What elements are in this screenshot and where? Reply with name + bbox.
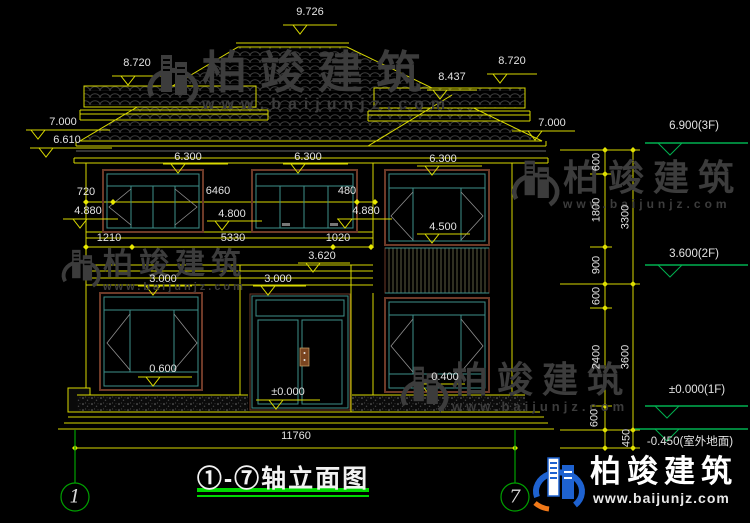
dim-1020: 1020	[326, 233, 350, 244]
dim-right-hip: 8.437	[438, 72, 466, 83]
axis-number-right: 7	[509, 487, 520, 508]
plinth-left	[77, 395, 248, 412]
window-2f-left	[103, 170, 203, 232]
dim-soffit-left: 6.300	[174, 152, 202, 163]
watermark-logo-icon	[56, 246, 102, 292]
dim-soffit-mid: 6.300	[294, 152, 322, 163]
watermark-website: www.baijunjz.com	[202, 97, 452, 113]
chain-1800: 1800	[592, 198, 603, 222]
dim-3620: 3.620	[308, 251, 336, 262]
dim-4800: 4.800	[218, 209, 246, 220]
dim-4880-left: 4.880	[74, 206, 102, 217]
footer-company-name: 柏竣建筑	[590, 456, 738, 487]
watermark-logo-icon	[394, 360, 450, 420]
level-ground: -0.450(室外地面)	[647, 437, 733, 449]
dim-4880-right: 4.880	[352, 206, 380, 217]
dim-0400: 0.400	[431, 372, 459, 383]
chain-2400: 2400	[592, 345, 603, 369]
dim-eave-right: 7.000	[538, 118, 566, 129]
dim-ridge: 9.726	[296, 7, 324, 18]
dim-soffit-right: 6.300	[429, 154, 457, 165]
dim-right-wing: 8.720	[498, 56, 526, 67]
company-logo-icon	[527, 453, 587, 513]
level-1f: ±0.000(1F)	[669, 385, 725, 397]
dim-4500: 4.500	[429, 222, 457, 233]
chain-450: 450	[622, 429, 633, 447]
watermark-top: 柏竣建筑 www.baijunjz.com	[202, 50, 452, 113]
dim-total-width: 11760	[281, 431, 311, 442]
footer-website: www.baijunjz.com	[593, 491, 730, 505]
steps	[58, 412, 554, 429]
watermark-logo-icon	[505, 156, 561, 212]
drawing-title: ①-⑦轴立面图	[197, 459, 369, 495]
window-1f-left	[100, 293, 202, 390]
chain-600-c: 600	[590, 409, 601, 427]
dim-left-wing: 8.720	[123, 58, 151, 69]
watermark-bottom: 柏竣建筑 www.baijunjz.com	[452, 362, 632, 413]
dim-eave-left-bottom: 6.610	[53, 135, 81, 146]
chain-600-b: 600	[592, 287, 603, 305]
dim-1210: 1210	[97, 233, 121, 244]
dim-720: 720	[77, 187, 95, 198]
chain-900: 900	[592, 256, 603, 274]
dim-3000-left: 3.000	[149, 274, 177, 285]
chain-600-a: 600	[592, 153, 603, 171]
watermark-company: 柏竣建筑	[452, 362, 632, 398]
dim-0000: ±0.000	[271, 387, 305, 398]
chain-3300: 3300	[621, 205, 632, 229]
level-3f: 6.900(3F)	[669, 121, 719, 133]
dim-0600: 0.600	[149, 364, 177, 375]
dim-6460: 6460	[206, 186, 230, 197]
chain-3600: 3600	[621, 345, 632, 369]
balcony-louver	[385, 248, 489, 293]
axis-number-left: 1	[69, 487, 80, 508]
watermark-website: www.baijunjz.com	[452, 400, 632, 413]
dim-5330: 5330	[221, 233, 245, 244]
watermark-left: 柏竣建筑 www.baijunjz.com	[103, 250, 247, 293]
level-2f: 3.600(2F)	[669, 249, 719, 261]
dim-480: 480	[338, 186, 356, 197]
door-handle	[300, 348, 309, 366]
watermark-company: 柏竣建筑	[202, 50, 452, 95]
cad-elevation-canvas: 柏竣建筑 www.baijunjz.com 柏竣建筑 www.baijunjz.…	[0, 0, 750, 523]
dim-eave-left-top: 7.000	[49, 117, 77, 128]
dim-3000-right: 3.000	[264, 274, 292, 285]
